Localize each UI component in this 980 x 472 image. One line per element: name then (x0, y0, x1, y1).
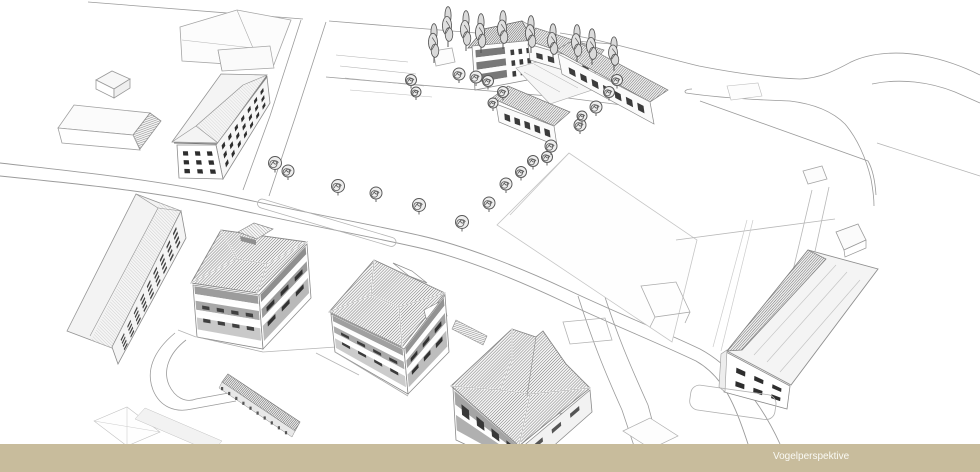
svg-text:Vogelperspektive: Vogelperspektive (773, 451, 850, 462)
